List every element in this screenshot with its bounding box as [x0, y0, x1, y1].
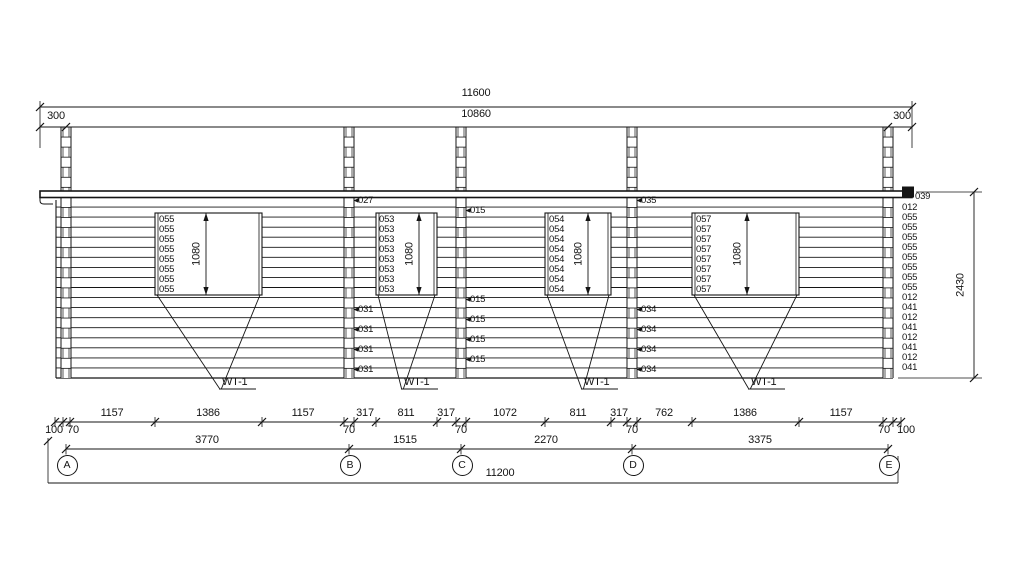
log-label: 055 [902, 223, 917, 232]
dim-segment: 811 [570, 408, 587, 419]
log-label: 054 [549, 225, 564, 234]
log-label: 057 [696, 285, 711, 294]
log-label: 015 [470, 206, 485, 215]
dim-total-bottom: 11200 [486, 468, 515, 479]
log-label: 034 [641, 305, 656, 314]
grid-axis-label: B [346, 460, 353, 470]
bottom-dimensions [44, 417, 905, 483]
log-label: 053 [379, 225, 394, 234]
log-label: 057 [696, 265, 711, 274]
dim-offset-right: 300 [893, 111, 911, 122]
log-label: 053 [379, 245, 394, 254]
log-label: 055 [159, 225, 174, 234]
log-label: 057 [696, 225, 711, 234]
dim-segment: 70 [67, 425, 79, 436]
dim-span: 1515 [393, 435, 417, 446]
log-label: 039 [915, 192, 930, 201]
log-label: 041 [902, 323, 917, 332]
log-label: 012 [902, 293, 917, 302]
dim-window-height: 1080 [574, 242, 585, 266]
log-label: 055 [902, 273, 917, 282]
dim-span: 3770 [195, 435, 219, 446]
log-label: 031 [358, 305, 373, 314]
grid-axis-label: E [885, 460, 892, 470]
log-label: 055 [159, 245, 174, 254]
log-label: 012 [902, 333, 917, 342]
dim-span: 3375 [748, 435, 772, 446]
log-label: 057 [696, 275, 711, 284]
log-label: 055 [159, 235, 174, 244]
eave-beam [40, 187, 914, 205]
log-label: 034 [641, 325, 656, 334]
log-label: 057 [696, 215, 711, 224]
log-label: 041 [902, 343, 917, 352]
dim-segment: 100 [897, 425, 915, 436]
log-label: 012 [902, 203, 917, 212]
dim-segment: 762 [655, 408, 673, 419]
log-label: 055 [902, 233, 917, 242]
dim-segment: 70 [878, 425, 890, 436]
dim-segment: 1157 [830, 408, 853, 419]
log-label: 015 [470, 355, 485, 364]
window-tag: WT-1 [751, 377, 776, 388]
log-label: 055 [159, 215, 174, 224]
dim-wall-height: 2430 [956, 273, 967, 297]
log-label: 057 [696, 245, 711, 254]
window-tag: WT-1 [584, 377, 609, 388]
dim-segment: 317 [437, 408, 455, 419]
dim-offset-left: 300 [47, 111, 65, 122]
log-label: 031 [358, 345, 373, 354]
log-label: 054 [549, 265, 564, 274]
dim-segment: 317 [610, 408, 628, 419]
log-label: 054 [549, 235, 564, 244]
log-label: 053 [379, 235, 394, 244]
drawing-linework [0, 0, 1024, 576]
grid-bubble-d: D [623, 455, 644, 476]
window-height-dims [203, 213, 749, 295]
log-label: 053 [379, 215, 394, 224]
log-label: 031 [358, 365, 373, 374]
log-label: 057 [696, 235, 711, 244]
log-label: 015 [470, 335, 485, 344]
log-label: 015 [470, 315, 485, 324]
dim-segment: 1072 [493, 408, 517, 419]
window-tag: WT-1 [404, 377, 429, 388]
log-label: 054 [549, 275, 564, 284]
dim-segment: 811 [398, 408, 415, 419]
grid-axis-label: C [458, 460, 466, 470]
log-label: 055 [159, 275, 174, 284]
dim-window-height: 1080 [733, 242, 744, 266]
log-label: 041 [902, 363, 917, 372]
grid-axis-label: D [629, 460, 637, 470]
log-label: 027 [358, 196, 373, 205]
log-label: 041 [902, 303, 917, 312]
dim-segment: 70 [455, 425, 467, 436]
dim-segment: 1157 [292, 408, 315, 419]
log-label: 054 [549, 215, 564, 224]
log-label: 034 [641, 345, 656, 354]
grid-bubble-a: A [57, 455, 78, 476]
log-label: 055 [159, 265, 174, 274]
log-label: 055 [902, 243, 917, 252]
log-label: 055 [159, 285, 174, 294]
dim-segment: 1157 [101, 408, 124, 419]
elevation-drawing: 11600 10860 300 300 2430 039 012 055 055… [0, 0, 1024, 576]
dim-segment: 70 [343, 425, 355, 436]
log-label: 055 [159, 255, 174, 264]
log-label: 055 [902, 263, 917, 272]
grid-bubble-e: E [879, 455, 900, 476]
log-label: 012 [902, 353, 917, 362]
dim-segment: 1386 [733, 408, 757, 419]
log-label: 053 [379, 265, 394, 274]
log-label: 055 [902, 253, 917, 262]
log-label: 034 [641, 365, 656, 374]
log-label: 057 [696, 255, 711, 264]
log-label: 055 [902, 213, 917, 222]
log-label: 053 [379, 255, 394, 264]
dim-total-top: 11600 [462, 88, 491, 99]
dim-window-height: 1080 [405, 242, 416, 266]
grid-bubble-c: C [452, 455, 473, 476]
log-label: 054 [549, 245, 564, 254]
log-label: 012 [902, 313, 917, 322]
log-label: 053 [379, 275, 394, 284]
log-label: 055 [902, 283, 917, 292]
log-label: 053 [379, 285, 394, 294]
dim-segment: 317 [356, 408, 374, 419]
log-label: 031 [358, 325, 373, 334]
log-label: 054 [549, 255, 564, 264]
dim-window-height: 1080 [192, 242, 203, 266]
grid-bubble-b: B [340, 455, 361, 476]
dim-inner-top: 10860 [461, 109, 491, 120]
dim-span: 2270 [534, 435, 558, 446]
log-label: 035 [641, 196, 656, 205]
log-label: 054 [549, 285, 564, 294]
log-label: 015 [470, 295, 485, 304]
window-tag: WT-1 [222, 377, 247, 388]
dim-segment: 100 [45, 425, 63, 436]
dim-segment: 70 [626, 425, 638, 436]
grid-axis-label: A [63, 460, 70, 470]
dim-segment: 1386 [196, 408, 220, 419]
